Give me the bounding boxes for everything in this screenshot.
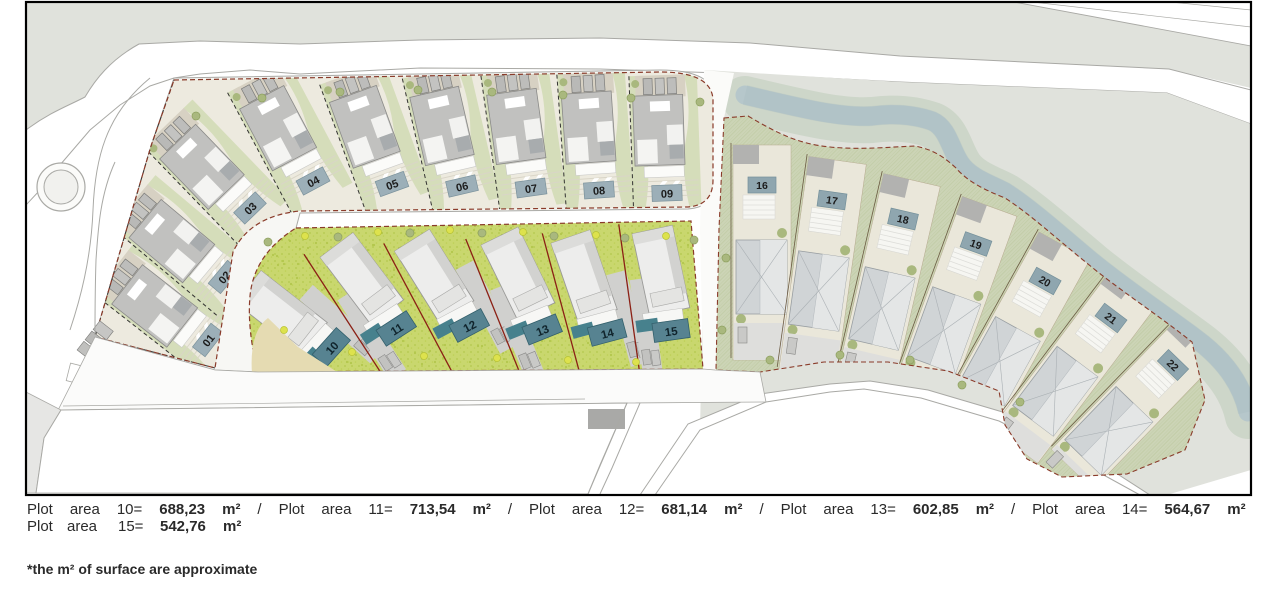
svg-text:08: 08 xyxy=(593,185,606,198)
svg-text:07: 07 xyxy=(524,183,538,197)
svg-text:15: 15 xyxy=(664,326,679,340)
svg-text:16: 16 xyxy=(756,180,768,192)
svg-text:09: 09 xyxy=(661,188,674,200)
svg-text:17: 17 xyxy=(825,194,838,208)
